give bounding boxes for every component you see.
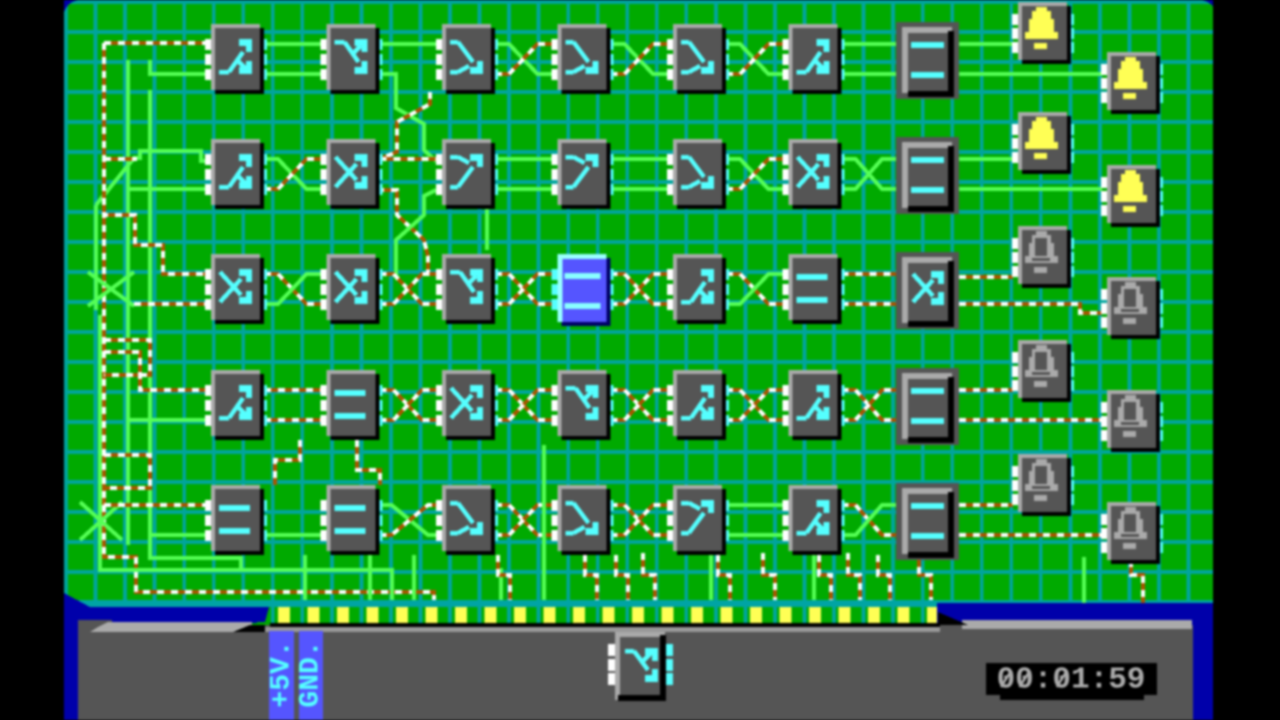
svg-text:00:01:59: 00:01:59 [997,663,1146,698]
svg-text:+5V.: +5V. [267,640,298,707]
svg-text:GND.: GND. [296,640,327,707]
